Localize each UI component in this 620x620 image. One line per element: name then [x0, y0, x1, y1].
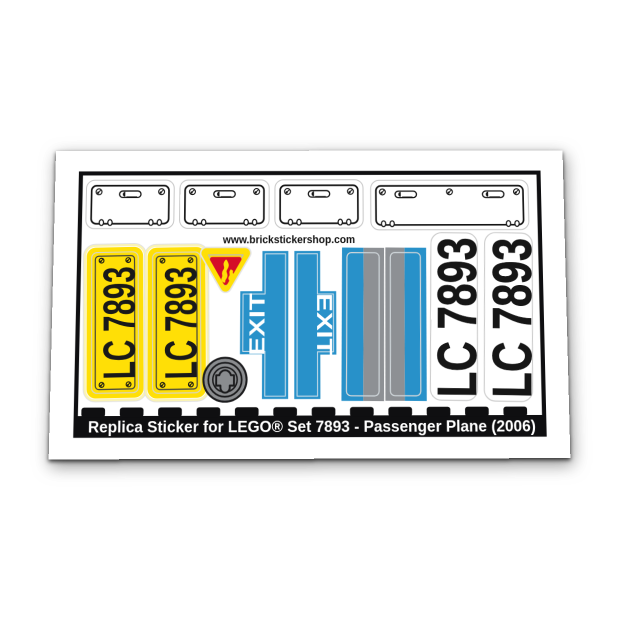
svg-text:LC 7893: LC 7893 — [427, 237, 489, 398]
svg-text:www.brickstickershop.com: www.brickstickershop.com — [222, 234, 355, 247]
svg-text:LC 7893: LC 7893 — [94, 266, 145, 380]
svg-text:EXIT: EXIT — [312, 293, 337, 356]
svg-text:EXIT: EXIT — [245, 293, 270, 356]
svg-text:LC 7893: LC 7893 — [155, 266, 206, 380]
svg-text:Replica Sticker for LEGO® Set: Replica Sticker for LEGO® Set 7893 - Pas… — [88, 418, 536, 437]
svg-text:LC 7893: LC 7893 — [482, 237, 544, 398]
